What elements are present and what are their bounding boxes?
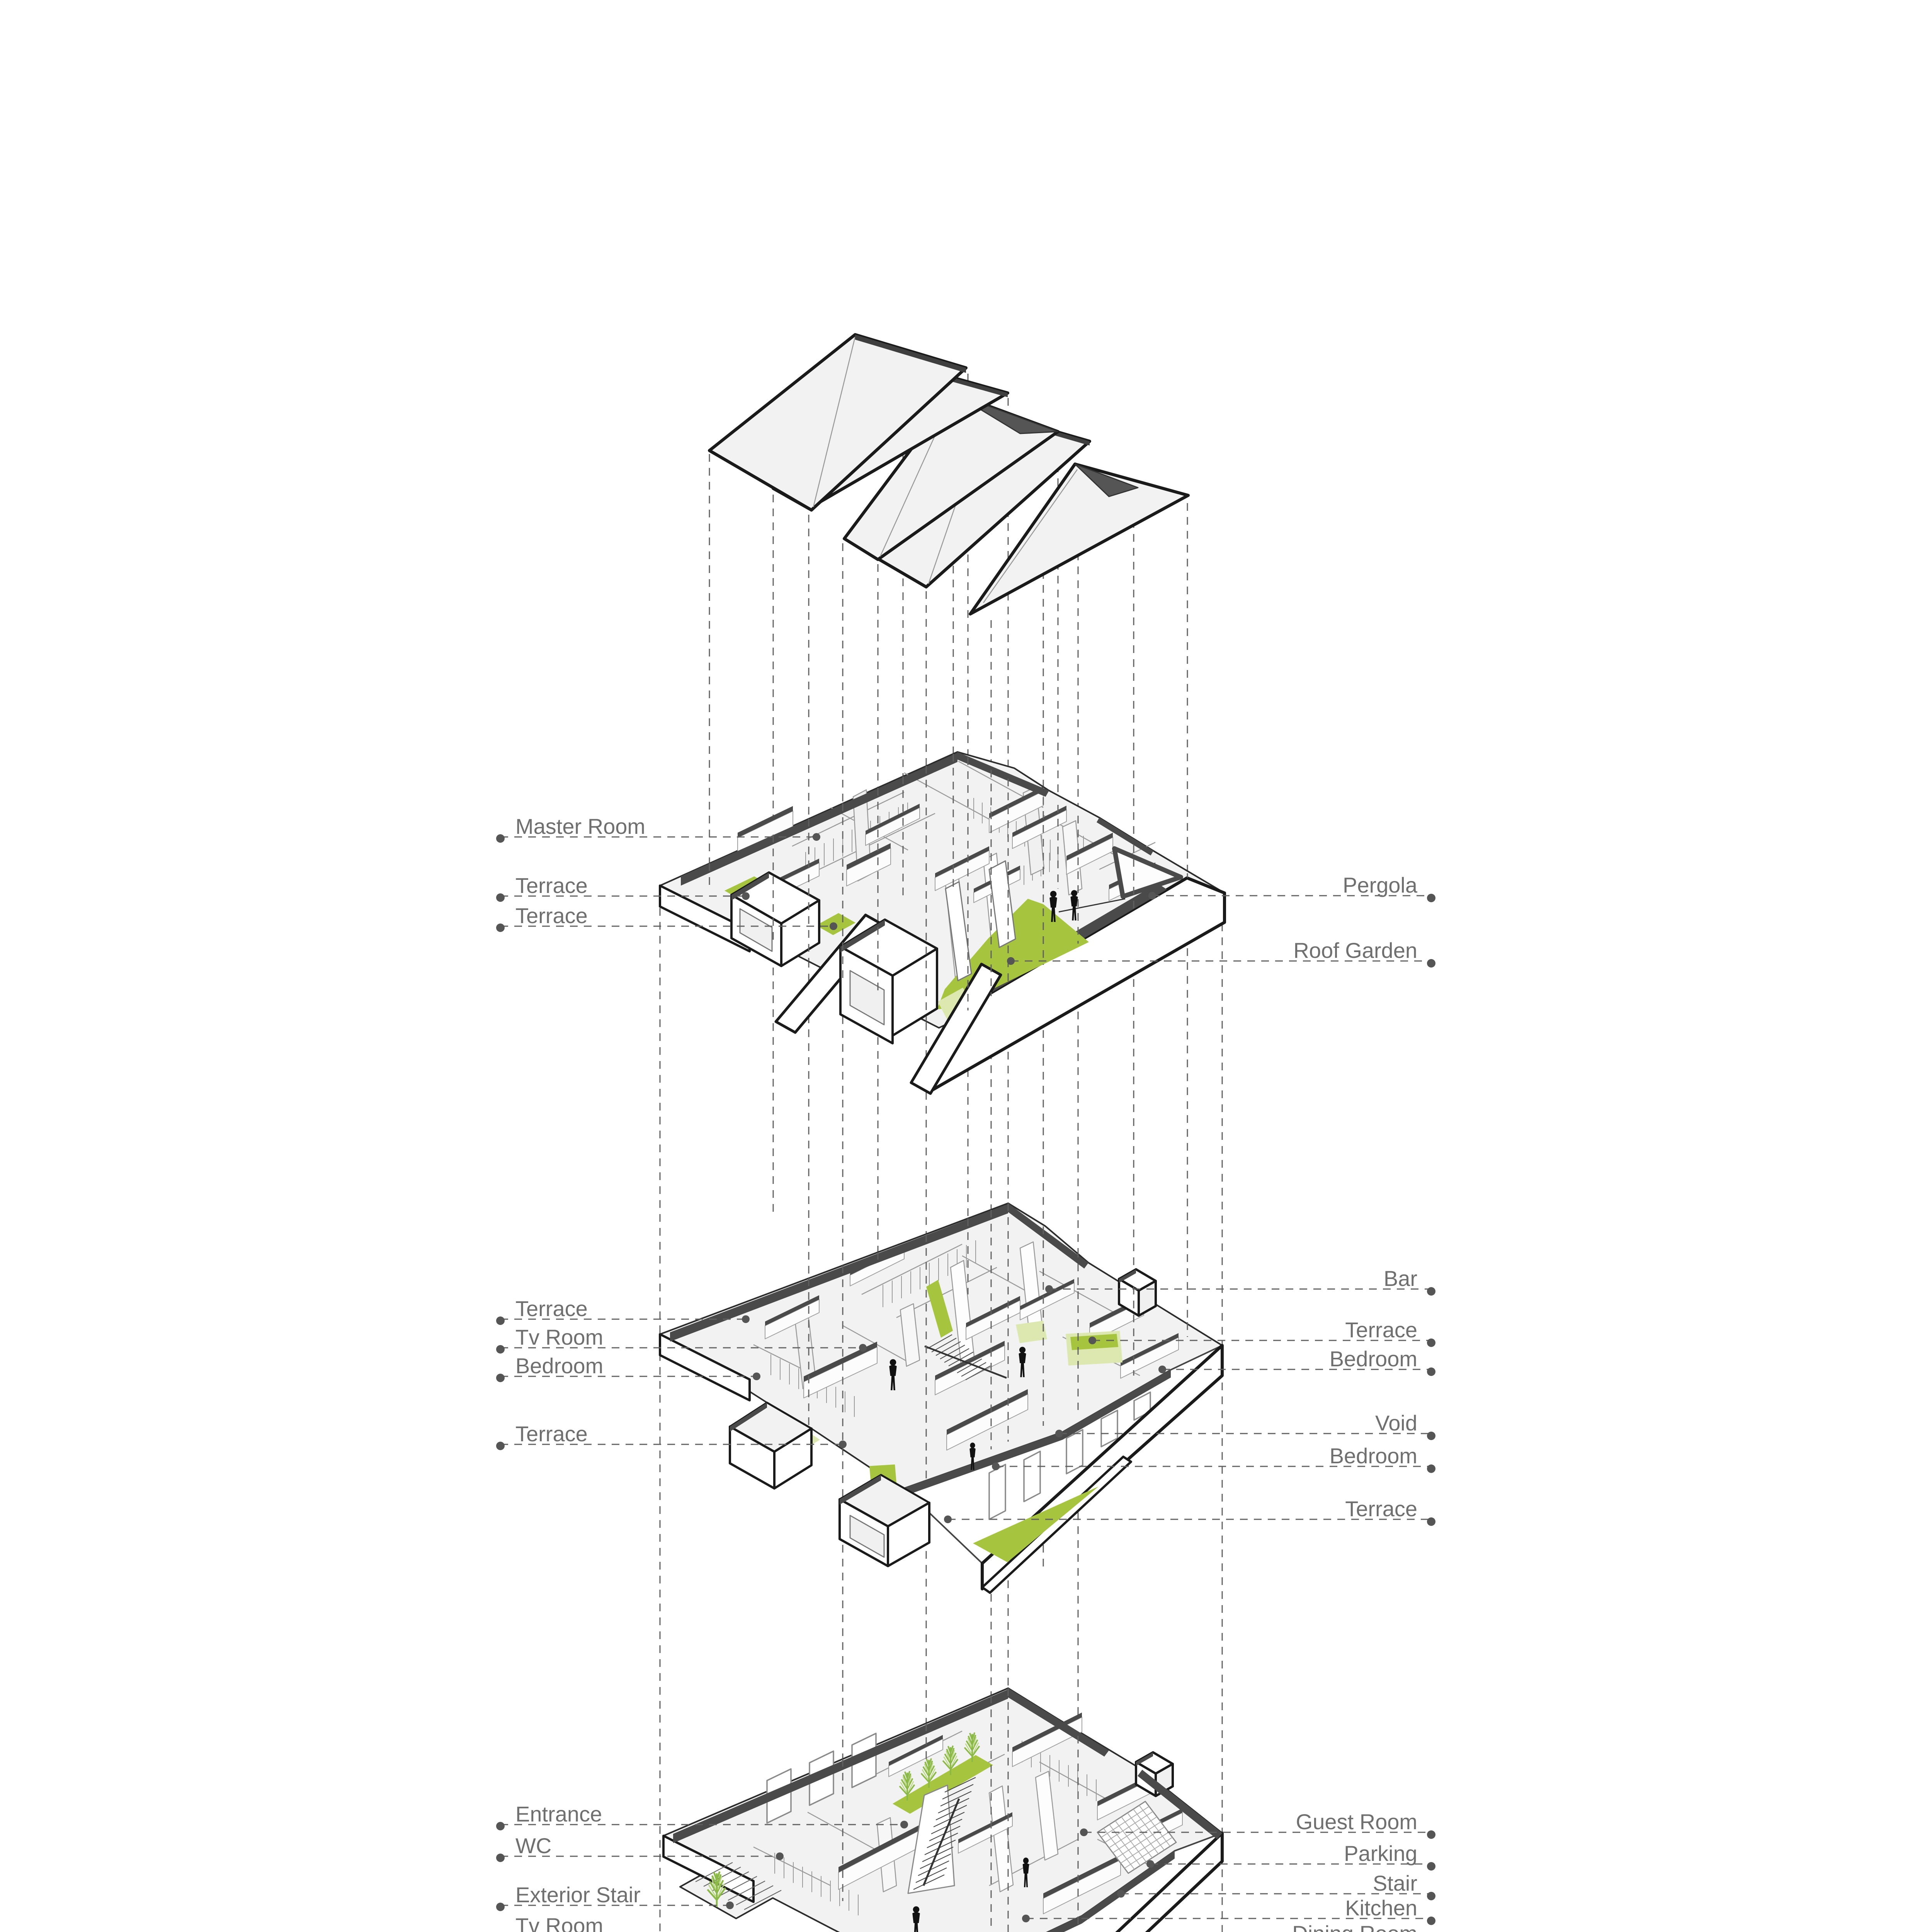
svg-text:Stair: Stair	[1373, 1871, 1417, 1895]
svg-text:Bedroom: Bedroom	[1330, 1444, 1417, 1468]
svg-text:Terrace: Terrace	[515, 903, 588, 928]
svg-text:Exterior Stair: Exterior Stair	[515, 1883, 641, 1907]
svg-text:Terrace: Terrace	[1345, 1497, 1417, 1521]
svg-text:Terrace: Terrace	[515, 873, 588, 898]
svg-text:Parking: Parking	[1344, 1841, 1417, 1866]
svg-text:Tv Room: Tv Room	[515, 1325, 603, 1349]
svg-text:Bedroom: Bedroom	[515, 1354, 603, 1378]
svg-text:WC: WC	[515, 1833, 551, 1858]
svg-text:Roof Garden: Roof Garden	[1293, 938, 1417, 963]
svg-text:Void: Void	[1375, 1411, 1417, 1435]
svg-text:Guest Room: Guest Room	[1296, 1810, 1417, 1834]
svg-text:Master Room: Master Room	[515, 814, 645, 838]
svg-text:Pergola: Pergola	[1343, 873, 1418, 897]
svg-text:Terrace: Terrace	[515, 1422, 588, 1446]
svg-text:Tv Room: Tv Room	[515, 1913, 603, 1932]
svg-text:Terrace: Terrace	[1345, 1318, 1417, 1342]
svg-text:Bedroom: Bedroom	[1330, 1347, 1417, 1371]
svg-text:Terrace: Terrace	[515, 1296, 588, 1321]
svg-text:Bar: Bar	[1384, 1266, 1417, 1291]
svg-text:Entrance: Entrance	[515, 1802, 602, 1826]
svg-text:Dining Room: Dining Room	[1292, 1921, 1417, 1932]
svg-text:Kitchen: Kitchen	[1345, 1896, 1417, 1920]
